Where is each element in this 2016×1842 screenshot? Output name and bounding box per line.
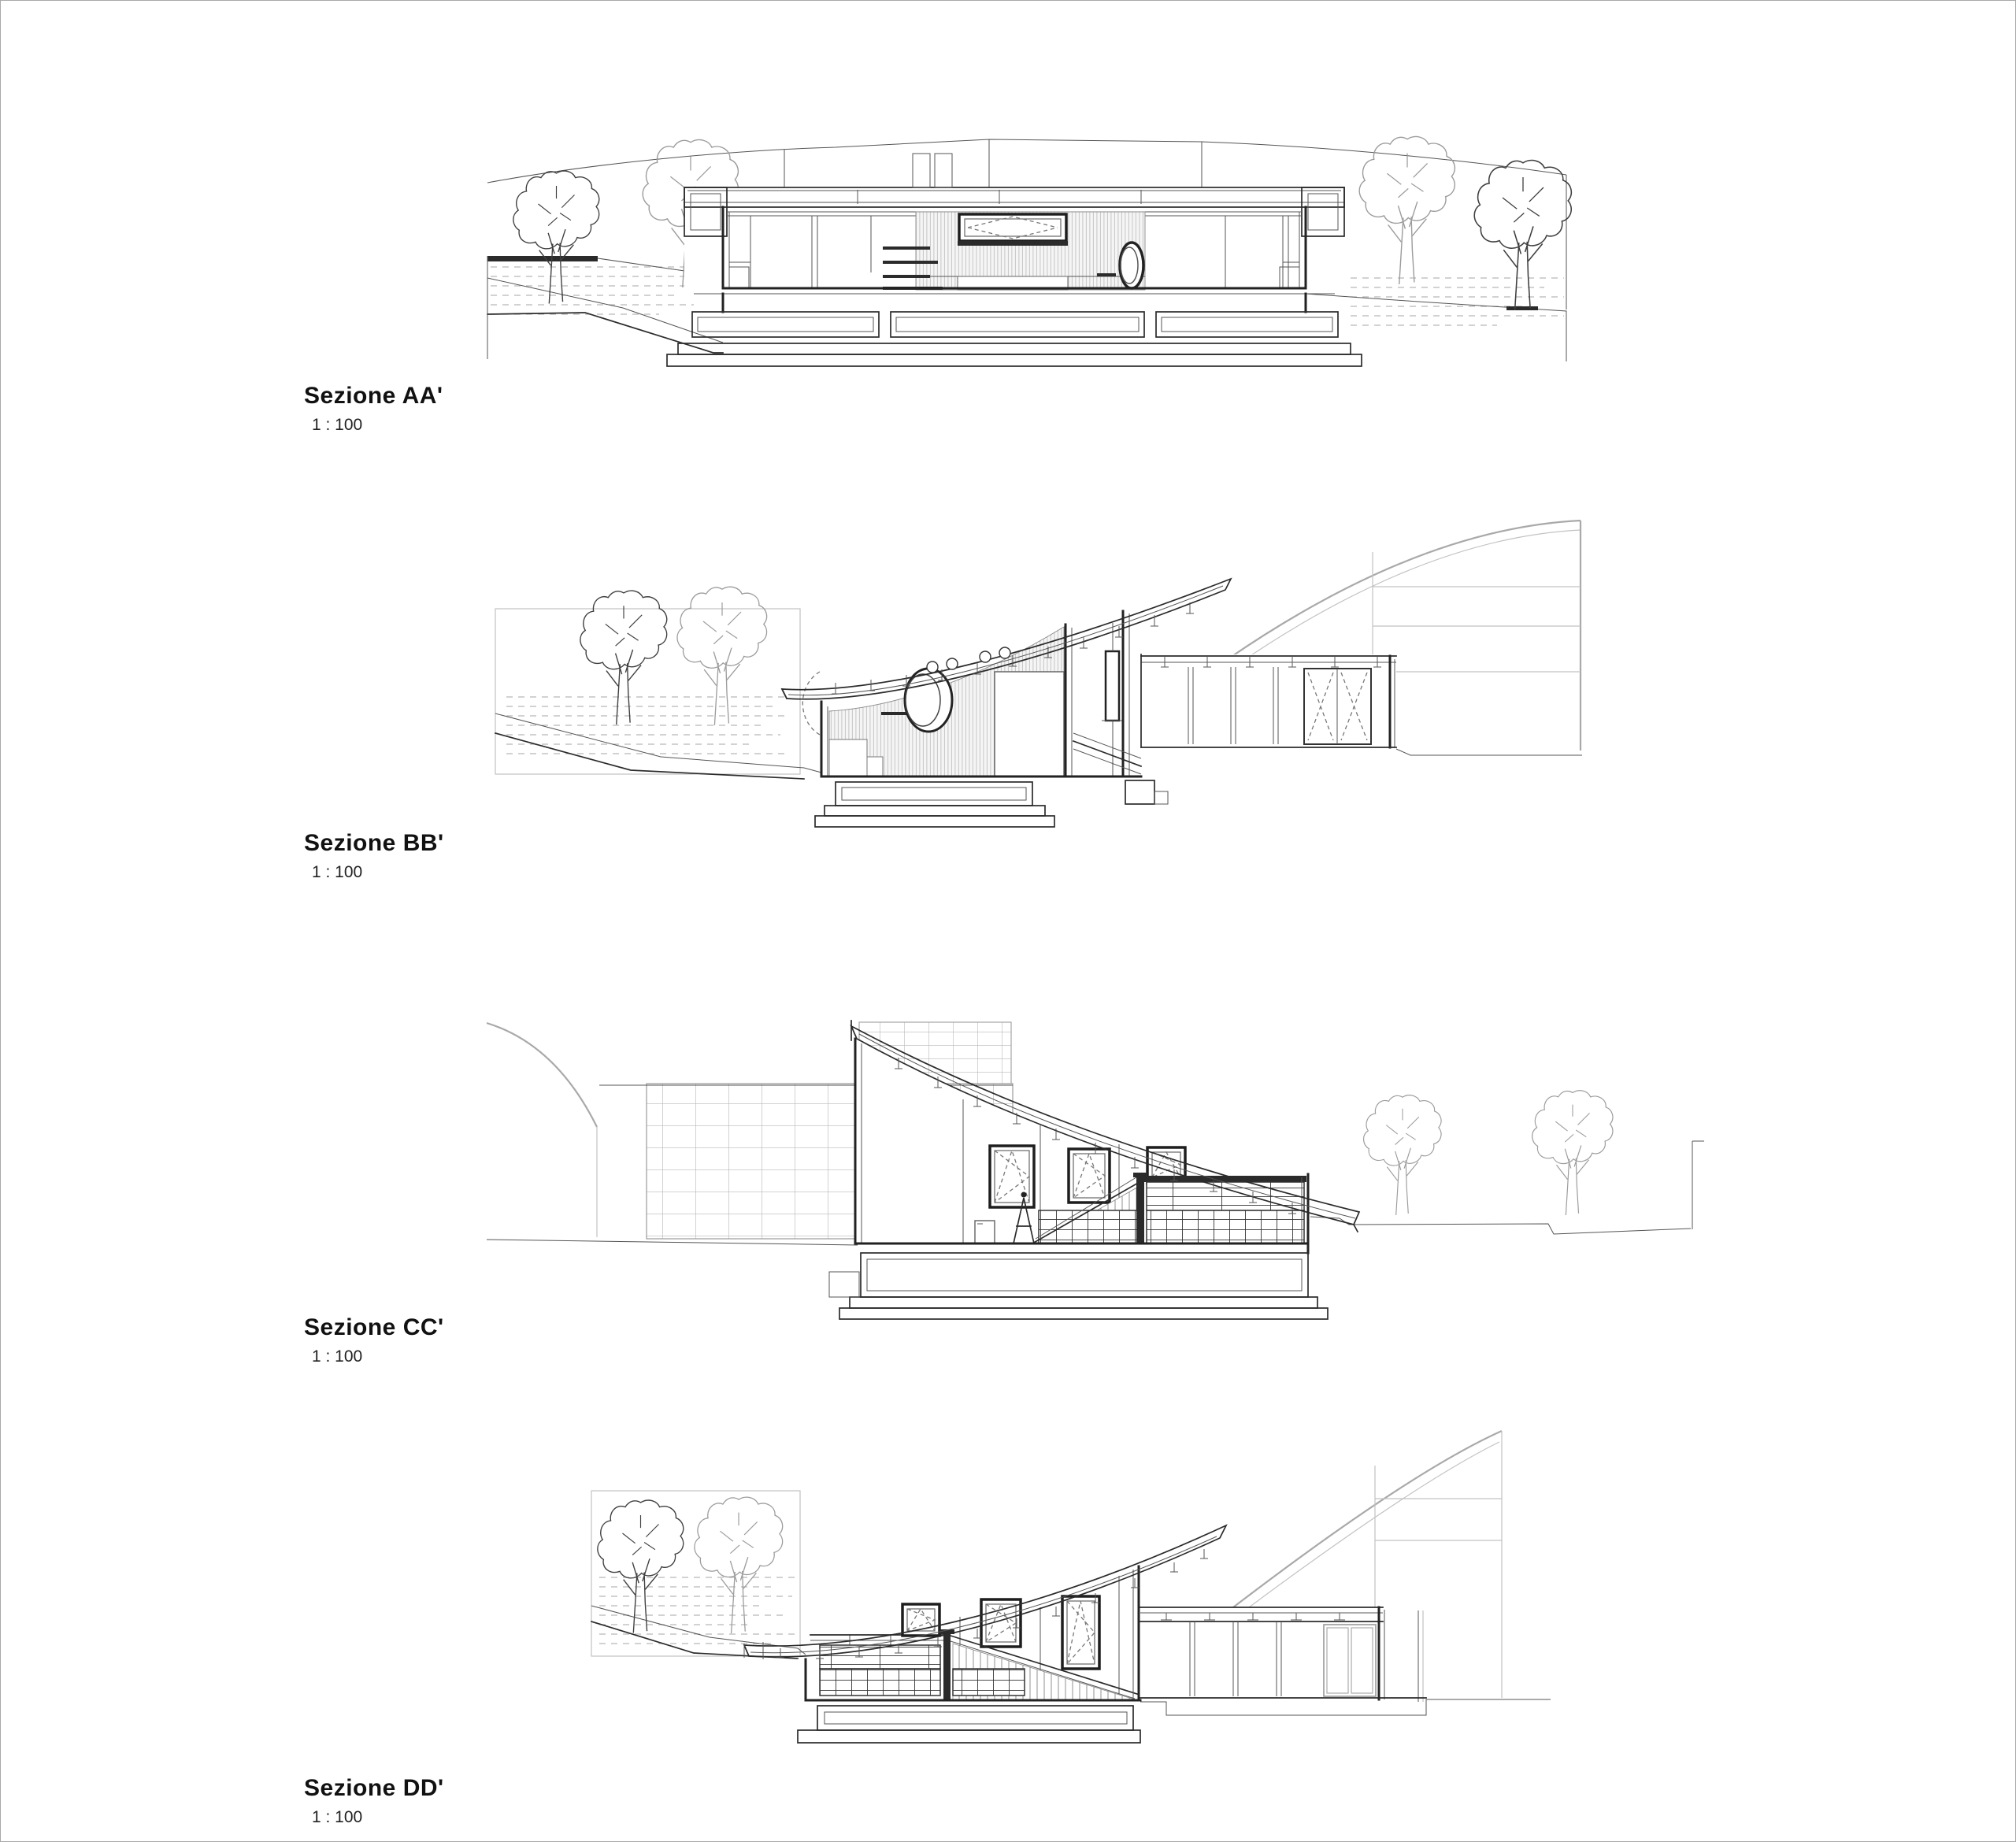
terrain [495, 609, 821, 779]
building-section-aa [667, 154, 1362, 366]
section-scale: 1 : 100 [304, 416, 443, 435]
sections-artwork [1, 1, 2016, 1842]
drawing-sheet: Sezione AA' 1 : 100 Sezione BB' 1 : 100 … [0, 0, 2016, 1842]
main-building [829, 1039, 1328, 1319]
label-sezione-aa: Sezione AA' 1 : 100 [304, 383, 443, 435]
section-title: Sezione AA' [304, 383, 443, 410]
section-scale: 1 : 100 [304, 1347, 444, 1366]
trees [598, 1497, 783, 1633]
section-scale: 1 : 100 [304, 863, 444, 882]
section-title: Sezione DD' [304, 1775, 444, 1802]
main-building [802, 611, 1168, 827]
trees [1364, 1091, 1613, 1215]
label-sezione-bb: Sezione BB' 1 : 100 [304, 830, 444, 882]
label-sezione-cc: Sezione CC' 1 : 100 [304, 1314, 444, 1366]
section-scale: 1 : 100 [304, 1808, 444, 1827]
annex-building [1141, 654, 1582, 755]
trees [580, 587, 767, 725]
section-aa-drawing [487, 137, 1571, 366]
section-dd-drawing [591, 1431, 1551, 1743]
label-sezione-dd: Sezione DD' 1 : 100 [304, 1775, 444, 1827]
section-title: Sezione BB' [304, 830, 444, 857]
section-title: Sezione CC' [304, 1314, 444, 1341]
annex-building [1140, 1607, 1551, 1715]
main-building [798, 1566, 1140, 1743]
section-cc-drawing [487, 1021, 1704, 1319]
terrain [591, 1491, 806, 1659]
section-bb-drawing [495, 521, 1582, 827]
